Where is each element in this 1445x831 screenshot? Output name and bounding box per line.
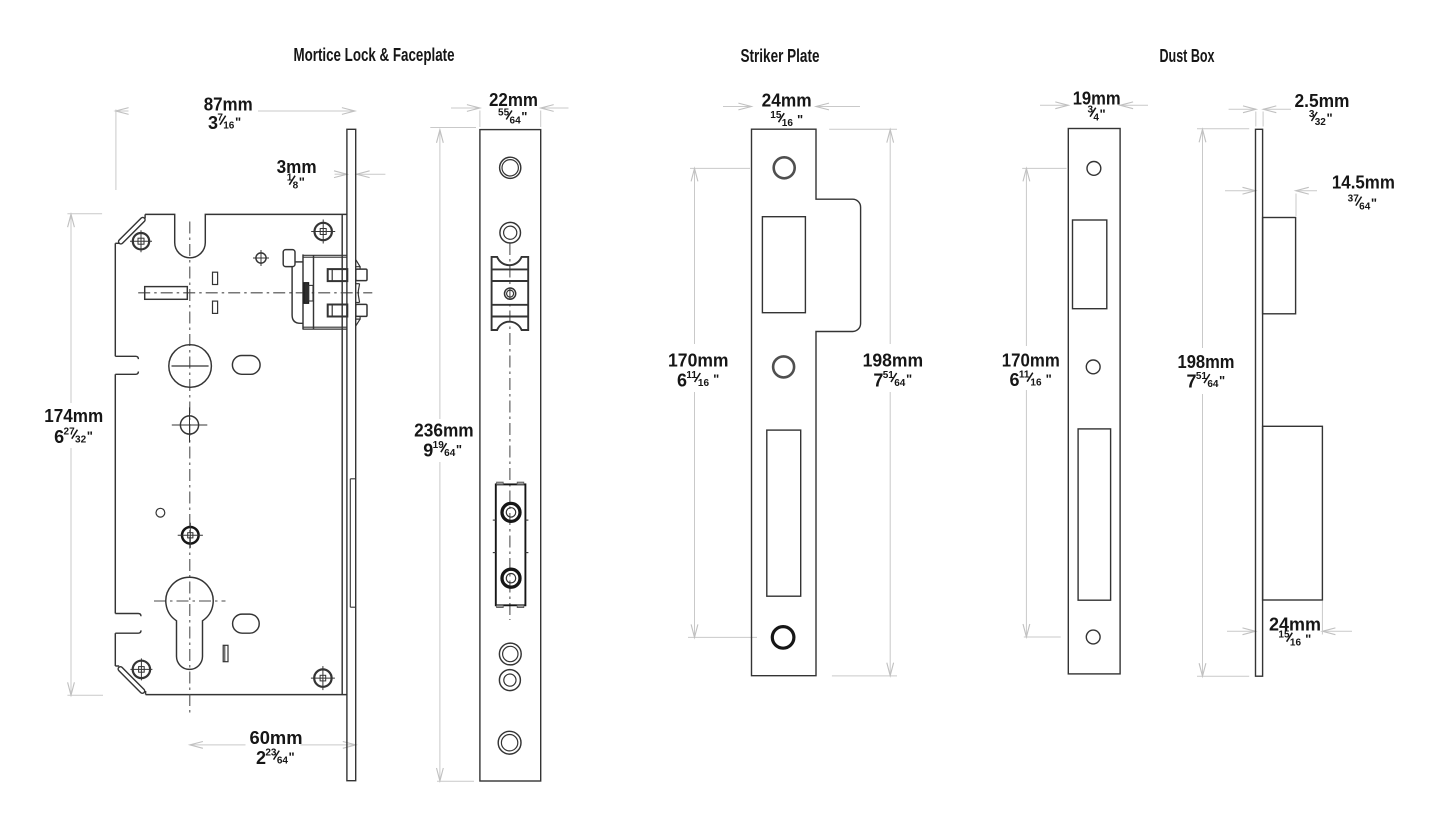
- svg-text:": ": [1099, 106, 1105, 121]
- svg-text:64: 64: [510, 115, 522, 126]
- svg-text:198mm: 198mm: [863, 350, 924, 370]
- svg-text:": ": [1371, 195, 1377, 210]
- svg-text:64: 64: [894, 378, 906, 389]
- svg-text:24mm: 24mm: [762, 90, 812, 110]
- svg-text:14.5mm: 14.5mm: [1332, 172, 1395, 192]
- svg-text:174mm: 174mm: [44, 406, 103, 426]
- svg-text:22mm: 22mm: [489, 90, 538, 110]
- svg-text:Mortice Lock & Faceplate: Mortice Lock & Faceplate: [294, 45, 455, 65]
- svg-text:236mm: 236mm: [414, 421, 474, 441]
- svg-text:32: 32: [1315, 117, 1327, 128]
- svg-text:32: 32: [75, 435, 87, 446]
- svg-text:2.5mm: 2.5mm: [1295, 91, 1350, 111]
- svg-text:64: 64: [1207, 379, 1219, 390]
- svg-text:16: 16: [698, 378, 710, 389]
- svg-text:": ": [235, 114, 241, 129]
- svg-text:": ": [87, 428, 93, 443]
- svg-text:64: 64: [444, 448, 456, 459]
- svg-text:16: 16: [1030, 378, 1042, 389]
- svg-text:": ": [521, 109, 527, 124]
- svg-text:": ": [1305, 631, 1311, 646]
- svg-text:": ": [906, 372, 912, 387]
- svg-text:198mm: 198mm: [1178, 352, 1235, 372]
- svg-text:": ": [1219, 373, 1225, 388]
- svg-text:8: 8: [293, 181, 299, 192]
- svg-text:64: 64: [277, 755, 289, 766]
- svg-text:": ": [1326, 111, 1332, 126]
- svg-text:Striker Plate: Striker Plate: [741, 46, 820, 66]
- svg-text:19mm: 19mm: [1073, 88, 1121, 108]
- svg-text:16: 16: [1290, 638, 1302, 649]
- svg-text:": ": [299, 174, 305, 189]
- svg-text:64: 64: [1359, 201, 1371, 212]
- svg-text:24mm: 24mm: [1269, 614, 1321, 634]
- svg-text:170mm: 170mm: [668, 350, 729, 370]
- svg-text:": ": [797, 112, 803, 127]
- svg-text:60mm: 60mm: [250, 728, 303, 748]
- svg-text:87mm: 87mm: [204, 94, 253, 114]
- svg-text:Dust Box: Dust Box: [1160, 46, 1215, 66]
- svg-text:16: 16: [223, 121, 235, 132]
- svg-text:": ": [289, 749, 295, 764]
- svg-text:": ": [456, 442, 462, 457]
- svg-text:170mm: 170mm: [1002, 350, 1060, 370]
- svg-text:": ": [713, 372, 719, 387]
- svg-text:16: 16: [782, 118, 794, 129]
- svg-text:4: 4: [1093, 113, 1099, 124]
- svg-text:3mm: 3mm: [277, 157, 317, 177]
- svg-text:": ": [1046, 371, 1052, 386]
